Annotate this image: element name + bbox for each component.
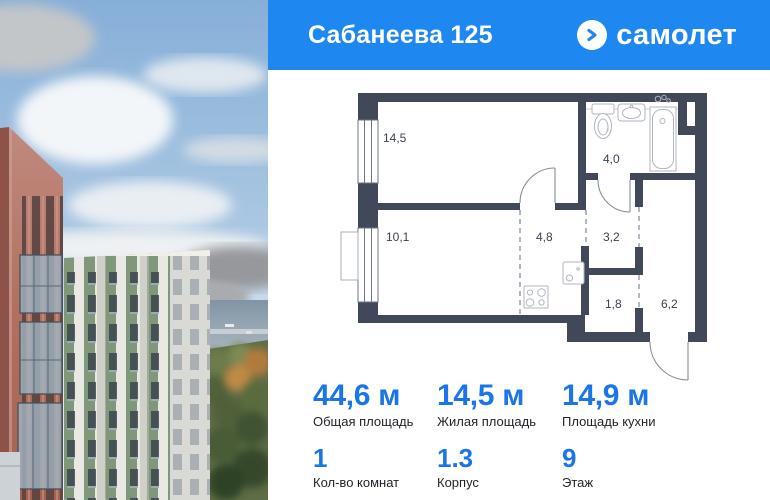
door-arc <box>520 168 555 203</box>
building-photo <box>0 0 268 500</box>
stat-label: Кол-во комнат <box>313 475 399 490</box>
listing-card[interactable]: Сабанеева 125 самолет <box>0 0 770 500</box>
balcony-sill <box>341 232 358 280</box>
stat-label: Этаж <box>562 475 593 490</box>
stat-rooms: 1 Кол-во комнат <box>313 444 399 490</box>
stat-value: 1.3 <box>437 444 479 472</box>
stat-total-area: 44,6 м Общая площадь <box>313 380 413 429</box>
arrow-circle-icon <box>577 20 607 50</box>
stat-living-area: 14,5 м Жилая площадь <box>437 380 536 429</box>
samolet-logo[interactable]: самолет <box>577 19 737 52</box>
door-arc <box>598 180 630 212</box>
stat-value: 9 <box>562 444 593 472</box>
window <box>358 120 378 183</box>
stat-value: 44,6 м <box>313 380 413 411</box>
room-area-label: 3,2 <box>603 230 620 244</box>
room-area-label: 1,8 <box>605 297 622 311</box>
stat-floor: 9 Этаж <box>562 444 593 490</box>
stat-value: 1 <box>313 444 399 472</box>
stat-label: Площадь кухни <box>562 414 655 429</box>
header-bar: Сабанеева 125 самолет <box>268 0 770 70</box>
entrance-door-arc <box>650 342 688 380</box>
stat-value: 14,9 м <box>562 380 655 411</box>
bathtub-icon <box>650 95 676 171</box>
room-area-label: 4,0 <box>603 152 620 166</box>
room-area-label: 4,8 <box>536 230 553 244</box>
washer-icon <box>563 262 584 284</box>
stat-kitchen-area: 14,9 м Площадь кухни <box>562 380 655 429</box>
toilet-icon <box>592 104 614 139</box>
brand-name: самолет <box>616 19 737 52</box>
building-photo-art <box>0 0 268 500</box>
sink-icon <box>618 104 645 121</box>
stat-label: Корпус <box>437 475 479 490</box>
stat-label: Общая площадь <box>313 414 413 429</box>
stat-value: 14,5 м <box>437 380 536 411</box>
room-area-label: 6,2 <box>661 297 678 311</box>
stat-building: 1.3 Корпус <box>437 444 479 490</box>
stat-label: Жилая площадь <box>437 414 536 429</box>
listing-title: Сабанеева 125 <box>308 21 493 50</box>
room-area-label: 10,1 <box>386 230 410 244</box>
floor-plan: 14,5 10,1 4,8 3,2 4,0 1,8 6,2 <box>340 85 750 385</box>
window <box>358 228 378 302</box>
stove-icon <box>524 286 548 308</box>
room-area-label: 14,5 <box>383 131 407 145</box>
